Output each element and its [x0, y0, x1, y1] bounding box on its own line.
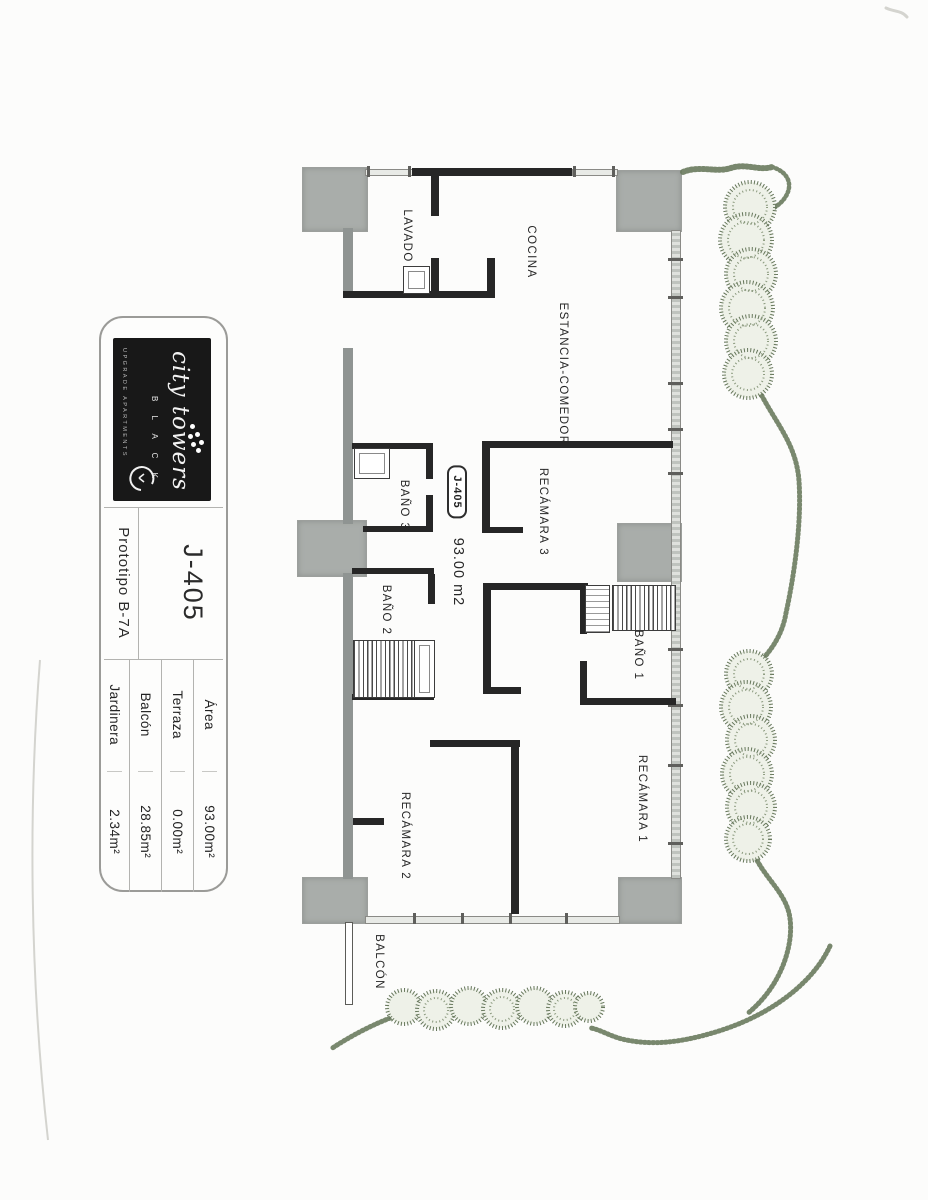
window-mullion	[668, 382, 683, 385]
wall-segment	[343, 348, 353, 524]
room-label-lavado: LAVADO	[401, 209, 413, 262]
closet-fixture	[585, 585, 610, 633]
washer-fixture	[403, 266, 430, 294]
window-mullion	[413, 913, 416, 924]
floor-plan-scan-page: city towers B L A C K UPGRADE APARTMENTS…	[0, 0, 928, 1200]
wall-segment	[482, 441, 673, 448]
wall-segment	[426, 443, 433, 479]
column	[302, 167, 368, 232]
room-label-bano-3: BAÑO 3	[398, 480, 410, 531]
wall-segment	[428, 574, 435, 604]
wall-segment	[343, 228, 353, 296]
room-label-bano-2: BAÑO 2	[380, 585, 392, 636]
toilet-fixture	[414, 640, 435, 698]
wall-segment	[431, 176, 439, 216]
bush-row-right-upper	[720, 182, 776, 398]
floorplan-drawing: J-405 93.00 m2 LAVADO COCINA ESTANCIA-CO…	[0, 0, 928, 1200]
balcony-rail	[345, 922, 353, 1005]
window-mullion	[461, 913, 464, 924]
window-mullion	[668, 258, 683, 261]
wall-segment	[352, 568, 434, 574]
window-mullion	[367, 166, 370, 177]
room-label-balcon: BALCÓN	[373, 934, 385, 990]
window-mullion	[668, 764, 683, 767]
window-mullion	[408, 166, 411, 177]
window-wall	[365, 169, 414, 176]
room-label-recamara-2: RECÁMARA 2	[399, 792, 411, 880]
unit-area-text: 93.00 m2	[450, 538, 466, 606]
wall-segment	[430, 740, 520, 747]
wall-segment	[412, 168, 572, 176]
wall-segment	[483, 687, 521, 694]
wall-segment	[580, 698, 676, 705]
bush-row-right-lower	[721, 651, 775, 861]
wall-segment	[482, 527, 523, 533]
unit-tag-text: J-405	[447, 465, 467, 518]
wall-segment	[353, 818, 384, 825]
wall-segment	[482, 441, 490, 533]
room-label-bano-1: BAÑO 1	[632, 630, 644, 681]
vanity-fixture	[354, 448, 390, 479]
shower-fixture	[612, 585, 676, 631]
wall-segment	[483, 583, 491, 693]
window-mullion	[668, 842, 683, 845]
window-mullion	[509, 913, 512, 924]
column	[616, 170, 682, 232]
window-wall	[365, 916, 620, 924]
wall-segment	[487, 258, 495, 298]
window-wall	[671, 230, 681, 879]
window-mullion	[668, 428, 683, 431]
scan-artifacts	[32, 8, 907, 1140]
bush-row-bottom	[387, 988, 603, 1029]
unit-tag-pill: J-405	[449, 465, 467, 518]
window-mullion	[668, 648, 683, 651]
room-label-estancia-comedor: ESTANCIA-COMEDOR	[557, 303, 569, 446]
wall-segment	[483, 583, 588, 590]
window-mullion	[612, 166, 615, 177]
column	[618, 877, 682, 924]
wall-segment	[343, 573, 353, 879]
wall-segment	[431, 258, 439, 293]
window-mullion	[668, 296, 683, 299]
column	[302, 877, 368, 924]
room-label-cocina: COCINA	[525, 225, 537, 278]
room-label-recamara-3: RECÁMARA 3	[537, 468, 549, 556]
window-mullion	[668, 472, 683, 475]
window-mullion	[565, 913, 568, 924]
shower-fixture	[353, 640, 416, 698]
room-label-recamara-1: RECÁMARA 1	[636, 755, 648, 843]
window-mullion	[573, 166, 576, 177]
wall-segment	[511, 747, 519, 914]
